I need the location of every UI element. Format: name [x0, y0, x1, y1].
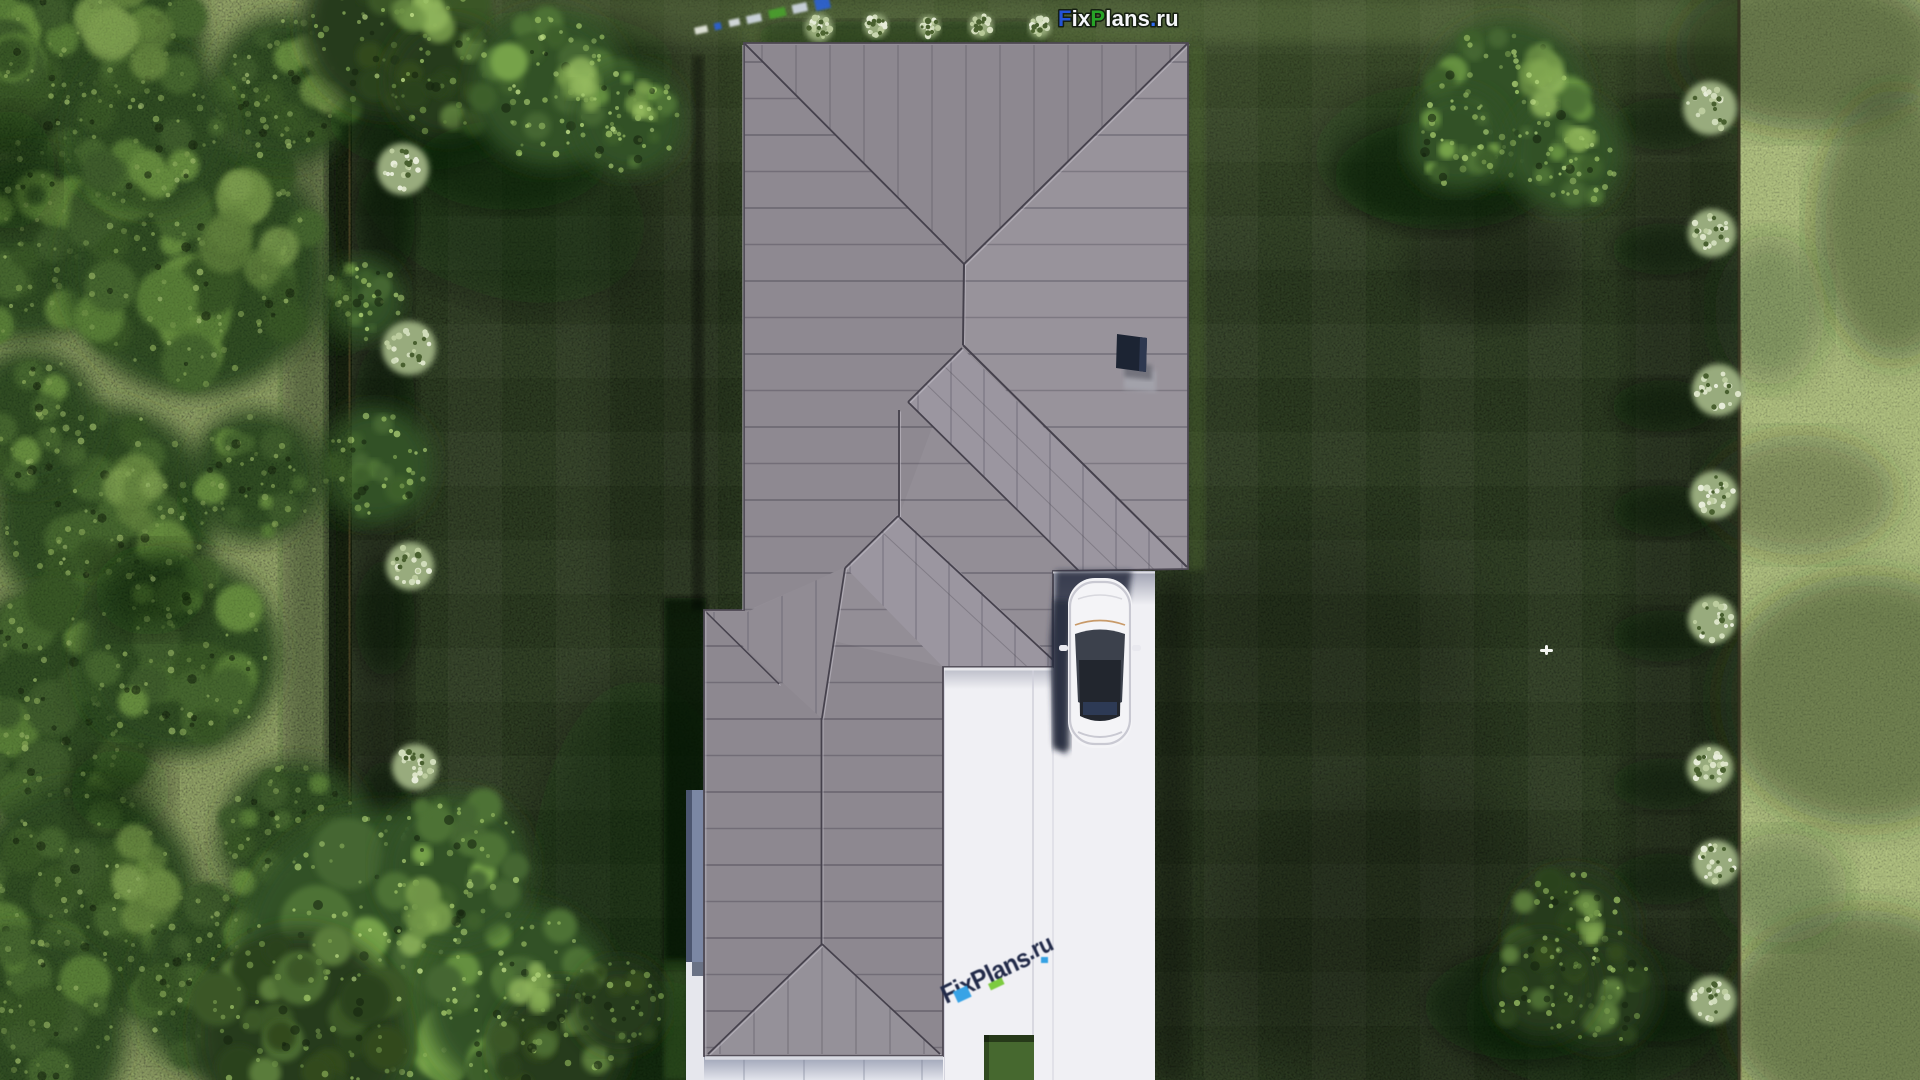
svg-text:FixPlans.ru: FixPlans.ru	[1058, 6, 1179, 31]
